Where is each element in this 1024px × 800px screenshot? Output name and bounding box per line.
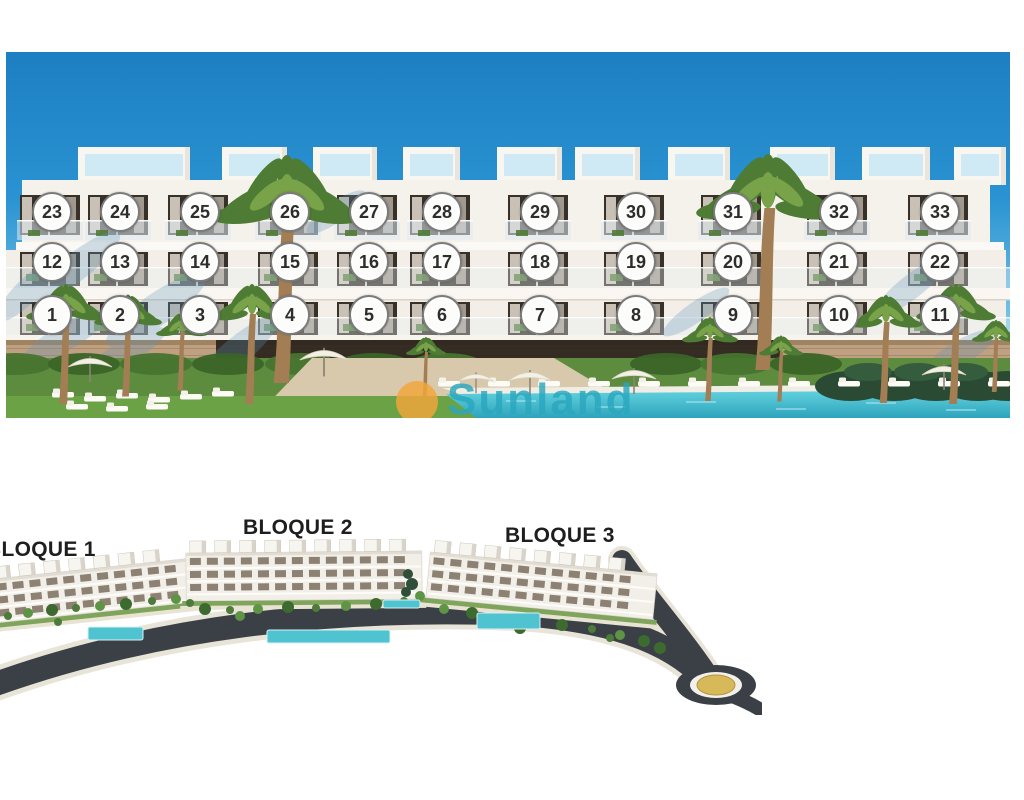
unit-marker-27: 27 (349, 192, 389, 232)
siteplan-render: BLOQUE 1 BLOQUE 2 BLOQUE 3 (0, 488, 762, 715)
unit-marker-16: 16 (349, 242, 389, 282)
unit-marker-33: 33 (920, 192, 960, 232)
label-bloque-1: BLOQUE 1 (0, 538, 96, 562)
unit-marker-18: 18 (520, 242, 560, 282)
unit-marker-19: 19 (616, 242, 656, 282)
unit-marker-8: 8 (616, 295, 656, 335)
unit-marker-28: 28 (422, 192, 462, 232)
unit-marker-7: 7 (520, 295, 560, 335)
unit-marker-4: 4 (270, 295, 310, 335)
unit-marker-17: 17 (422, 242, 462, 282)
siteplan-scene (0, 488, 762, 715)
unit-marker-9: 9 (713, 295, 753, 335)
unit-marker-1: 1 (32, 295, 72, 335)
unit-marker-26: 26 (270, 192, 310, 232)
unit-marker-3: 3 (180, 295, 220, 335)
unit-marker-13: 13 (100, 242, 140, 282)
unit-marker-21: 21 (819, 242, 859, 282)
unit-marker-14: 14 (180, 242, 220, 282)
listing-image-canvas: Sunland 23242526272829303132331213141516… (0, 0, 1024, 800)
unit-marker-10: 10 (819, 295, 859, 335)
unit-marker-22: 22 (920, 242, 960, 282)
unit-marker-20: 20 (713, 242, 753, 282)
facade-render: Sunland 23242526272829303132331213141516… (6, 52, 1010, 418)
label-bloque-3: BLOQUE 3 (505, 524, 615, 548)
unit-markers: 2324252627282930313233121314151617181920… (6, 52, 1010, 418)
unit-marker-32: 32 (819, 192, 859, 232)
unit-marker-2: 2 (100, 295, 140, 335)
unit-marker-29: 29 (520, 192, 560, 232)
unit-marker-6: 6 (422, 295, 462, 335)
unit-marker-23: 23 (32, 192, 72, 232)
roundabout-icon (676, 665, 756, 705)
unit-marker-31: 31 (713, 192, 753, 232)
unit-marker-12: 12 (32, 242, 72, 282)
unit-marker-30: 30 (616, 192, 656, 232)
label-bloque-2: BLOQUE 2 (243, 516, 353, 540)
unit-marker-15: 15 (270, 242, 310, 282)
unit-marker-25: 25 (180, 192, 220, 232)
unit-marker-5: 5 (349, 295, 389, 335)
unit-marker-11: 11 (920, 295, 960, 335)
unit-marker-24: 24 (100, 192, 140, 232)
